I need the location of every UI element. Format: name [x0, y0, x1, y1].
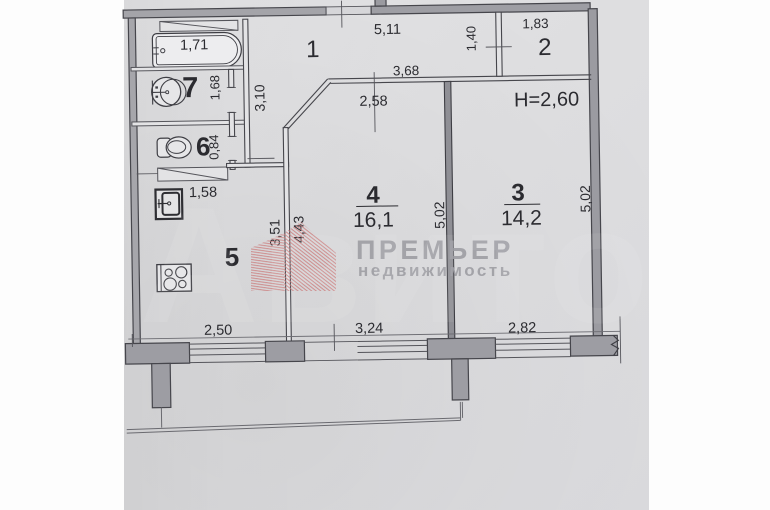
svg-text:3,68: 3,68	[393, 63, 420, 78]
svg-text:1,71: 1,71	[180, 37, 208, 53]
svg-text:Авито: Авито	[139, 173, 650, 357]
svg-text:1,40: 1,40	[463, 26, 478, 52]
svg-text:H=2,60: H=2,60	[514, 88, 579, 111]
svg-text:3,10: 3,10	[251, 84, 267, 112]
svg-text:1,68: 1,68	[207, 75, 222, 101]
svg-text:5,11: 5,11	[374, 22, 401, 38]
svg-text:7: 7	[182, 72, 199, 104]
svg-text:0,84: 0,84	[206, 134, 221, 160]
svg-text:2,58: 2,58	[359, 93, 387, 109]
svg-text:1: 1	[306, 36, 320, 63]
svg-text:1,83: 1,83	[522, 16, 549, 31]
svg-text:2: 2	[538, 34, 552, 61]
